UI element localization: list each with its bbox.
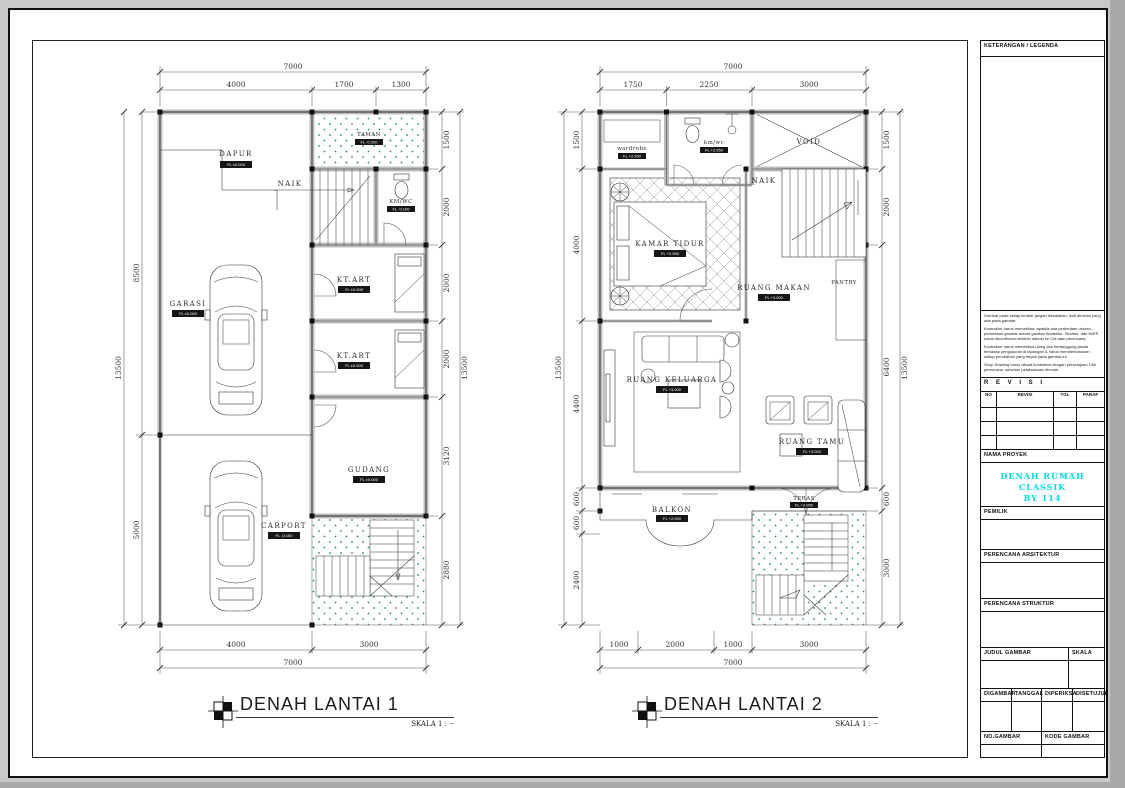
revisi-col-tgl: TGL: [1054, 392, 1077, 407]
revisi-empty-row: [981, 407, 1104, 421]
revisi-col-no: NO: [981, 392, 997, 407]
room-label-dapur: DAPUR: [219, 150, 252, 158]
dim-label: 2000: [882, 197, 891, 216]
room-label-balkon: BALKON: [652, 506, 692, 514]
room-label-teras: TERAS: [793, 496, 815, 502]
dim-label: 13500: [900, 356, 909, 380]
level-ktart2: FL ±0.000: [345, 363, 364, 368]
plan1-title: DENAH LANTAI 1 SKALA 1 : --: [208, 694, 468, 734]
dim-label: 3000: [799, 80, 818, 89]
perencana-arsitektur-empty-box: [981, 563, 1104, 599]
ktart2-door-arc: [314, 350, 336, 372]
tanggal-label: TANGGAL: [1012, 689, 1042, 701]
dim-label: 13500: [114, 356, 123, 380]
dim-label: 1000: [609, 640, 628, 649]
shower-icon: [726, 114, 738, 134]
living-room-furniture: [604, 332, 740, 472]
kode-gambar-label: KODE GAMBAR: [1042, 732, 1104, 744]
dim-label: 5000: [132, 520, 141, 539]
drawing-sheet: DAPUR FL ±0.000 TAMAN FL -0.200 NAIK KM/…: [8, 8, 1108, 778]
skala-label: SKALA: [1069, 648, 1104, 660]
plan2-title-text: DENAH LANTAI 2: [664, 694, 823, 715]
title-marker-icon: [208, 696, 238, 730]
level-ruang-tamu: FL +3.000: [803, 449, 822, 454]
room-label-kmwc-1: KM/WC: [389, 199, 412, 205]
wardrobe-cabinet: [604, 120, 660, 142]
level-kmwc-2: FL +2.950: [705, 148, 724, 153]
plan2-drawing: wardrobe FL +2.950 km/wc FL +2.950 VOID …: [542, 50, 910, 700]
dim-label: 3000: [882, 558, 891, 577]
car-garage: [205, 265, 267, 415]
room-label-gudang: GUDANG: [348, 466, 390, 474]
room-label-carport: CARPORT: [261, 522, 307, 530]
dim-label: 1700: [334, 80, 353, 89]
perencana-struktur-label: PERENCANA STRUKTUR: [981, 599, 1104, 612]
level-ruang-makan: FL +3.000: [765, 295, 784, 300]
revisi-col-revisi: REVISI: [997, 392, 1054, 407]
room-label-garasi: GARASI: [170, 300, 207, 308]
dim-label: 2000: [442, 349, 451, 368]
room-label-kmwc-2: km/wc: [704, 140, 724, 146]
dim-label: 7000: [283, 658, 302, 667]
dim-label: 4000: [572, 235, 581, 254]
plan2-title: DENAH LANTAI 2 SKALA 1 : --: [632, 694, 892, 734]
legend-empty-box: [981, 57, 1104, 311]
ktart1-door-arc: [314, 274, 336, 296]
title-block: KETERANGAN / LEGENDA Gambar pada setiap …: [980, 40, 1105, 758]
revisi-table-header: NO REVISI TGL PARAF: [981, 392, 1104, 407]
dim-label: 1500: [572, 130, 581, 149]
dim-label: 8500: [132, 263, 141, 282]
no-gambar-label: NO.GAMBAR: [981, 732, 1042, 744]
level-kmwc-1: FL -0.100: [393, 207, 411, 212]
judul-gambar-label: JUDUL GAMBAR: [981, 648, 1069, 660]
disetujui-label: DISETUJUI: [1073, 689, 1104, 701]
stair-naik-2: [782, 169, 866, 257]
revisi-col-paraf: PARAF: [1077, 392, 1104, 407]
dim-label: 1750: [623, 80, 642, 89]
level-wardrobe: FL +2.950: [623, 154, 642, 159]
level-ruang-keluarga: FL +3.000: [663, 387, 682, 392]
stair-label-naik-2: NAIK: [752, 177, 777, 185]
revisi-header: R E V I S I: [981, 378, 1104, 392]
level-teras: FL +2.950: [795, 503, 814, 508]
dim-label: 4400: [572, 394, 581, 413]
plan1-title-text: DENAH LANTAI 1: [240, 694, 399, 715]
revisi-table: NO REVISI TGL PARAF: [981, 392, 1104, 450]
room-label-ruang-tamu: RUANG TAMU: [779, 438, 845, 446]
dim-label: 13500: [460, 356, 469, 380]
dim-label: 1500: [882, 130, 891, 149]
pemilik-empty-box: [981, 520, 1104, 550]
dim-label: 2000: [442, 197, 451, 216]
perencana-struktur-empty-box: [981, 612, 1104, 648]
plan2-scale-note: SKALA 1 : --: [752, 720, 878, 728]
level-garasi: FL ±0.000: [179, 311, 198, 316]
diperiksa-label: DIPERIKSA: [1042, 689, 1073, 701]
title-marker-icon: [632, 696, 662, 730]
revisi-empty-row: [981, 421, 1104, 435]
project-name: DENAH RUMAH CLASSIK BY 114: [981, 463, 1104, 507]
kmwc-door-arc: [384, 223, 406, 245]
room-label-ktart2: KT.ART: [337, 352, 371, 360]
room-label-taman: TAMAN: [357, 132, 381, 138]
digambar-label: DIGAMBAR: [981, 689, 1012, 701]
level-ktart1: FL ±0.000: [345, 287, 364, 292]
dim-label: 6400: [882, 357, 891, 376]
stair-label-naik-1: NAIK: [278, 180, 303, 188]
approval-header-row: DIGAMBAR TANGGAL DIPERIKSA DISETUJUI: [981, 689, 1104, 702]
dim-label: 1500: [442, 130, 451, 149]
kitchen-counter: [160, 150, 277, 210]
dim-label: 7000: [723, 658, 742, 667]
revisi-empty-row: [981, 435, 1104, 449]
dim-label: 3000: [359, 640, 378, 649]
general-notes: Gambar pada setiap lembar jangan diskala…: [981, 311, 1104, 378]
dim-label: 600: [572, 516, 581, 531]
bed-ktart1: [395, 254, 424, 312]
level-balkon: FL +2.950: [663, 516, 682, 521]
room-label-wardrobe: wardrobe: [617, 146, 647, 152]
gambar-number-row: NO.GAMBAR KODE GAMBAR: [981, 732, 1104, 745]
room-label-ktart1: KT.ART: [337, 276, 371, 284]
car-carport: [205, 461, 267, 611]
dim-label: 2250: [699, 80, 718, 89]
dim-label: 2000: [442, 273, 451, 292]
dim-label: 1000: [723, 640, 742, 649]
dim-label: 2400: [572, 570, 581, 589]
dim-label: 1300: [391, 80, 410, 89]
judul-gambar-row: JUDUL GAMBAR SKALA: [981, 648, 1104, 661]
pantry-counter: [836, 260, 866, 340]
perencana-arsitektur-label: PERENCANA ARSITEKTUR: [981, 550, 1104, 563]
level-carport: FL -0.150: [276, 533, 294, 538]
title-underline: [660, 717, 878, 718]
level-gudang: FL ±0.000: [360, 477, 379, 482]
room-label-ruang-makan: RUANG MAKAN: [737, 284, 811, 292]
page: { "colors": { "accent_cyan": "#00DEDE", …: [0, 0, 1125, 788]
dim-label: 3120: [442, 446, 451, 465]
dim-label: 4000: [226, 80, 245, 89]
approval-empty-row: [981, 702, 1104, 732]
note-line: Gambar pada setiap lembar jangan diskala…: [984, 313, 1101, 323]
gudang-door-arc: [314, 405, 336, 427]
level-dapur: FL ±0.000: [227, 162, 246, 167]
plan1-drawing: DAPUR FL ±0.000 TAMAN FL -0.200 NAIK KM/…: [102, 50, 470, 700]
room-label-kamar-tidur: KAMAR TIDUR: [635, 240, 704, 248]
nama-proyek-label: NAMA PROYEK: [981, 450, 1104, 463]
toilet-icon: [394, 174, 409, 199]
dim-label: 3000: [799, 640, 818, 649]
pemilik-label: PEMILIK: [981, 507, 1104, 520]
room-label-ruang-keluarga: RUANG KELUARGA: [627, 376, 718, 384]
page-shadow-bottom: [0, 782, 1125, 788]
judul-gambar-empty-row: [981, 661, 1104, 689]
dim-label: 13500: [554, 356, 563, 380]
project-name-line1: DENAH RUMAH CLASSIK: [981, 471, 1104, 493]
page-shadow-right: [1110, 0, 1125, 788]
dim-label: 600: [572, 492, 581, 507]
dim-label: 2880: [442, 560, 451, 579]
gambar-number-empty-row: [981, 745, 1104, 757]
plan1-scale-note: SKALA 1 : --: [328, 720, 454, 728]
dim-label: 4000: [226, 640, 245, 649]
room-label-void: VOID: [796, 138, 822, 146]
note-line: Kontraktor harus memeriksa ulang dan ber…: [984, 344, 1101, 359]
dim-label: 7000: [723, 62, 742, 71]
note-line: Shop Drawing harus dibuat kontraktor den…: [984, 362, 1101, 372]
note-line: Kontraktor harus memeriksa, apabila ada …: [984, 326, 1101, 341]
title-underline: [236, 717, 454, 718]
level-kamar-tidur: FL +2.950: [661, 251, 680, 256]
dim-label: 2000: [665, 640, 684, 649]
bed-ktart2: [395, 330, 424, 388]
level-taman: FL -0.200: [361, 140, 379, 145]
dim-label: 7000: [283, 62, 302, 71]
dim-label: 600: [882, 492, 891, 507]
project-name-line2: BY 114: [981, 493, 1104, 504]
room-label-pantry: PANTRY: [831, 280, 857, 286]
toilet-icon-2: [685, 118, 700, 143]
legend-header: KETERANGAN / LEGENDA: [981, 41, 1104, 57]
